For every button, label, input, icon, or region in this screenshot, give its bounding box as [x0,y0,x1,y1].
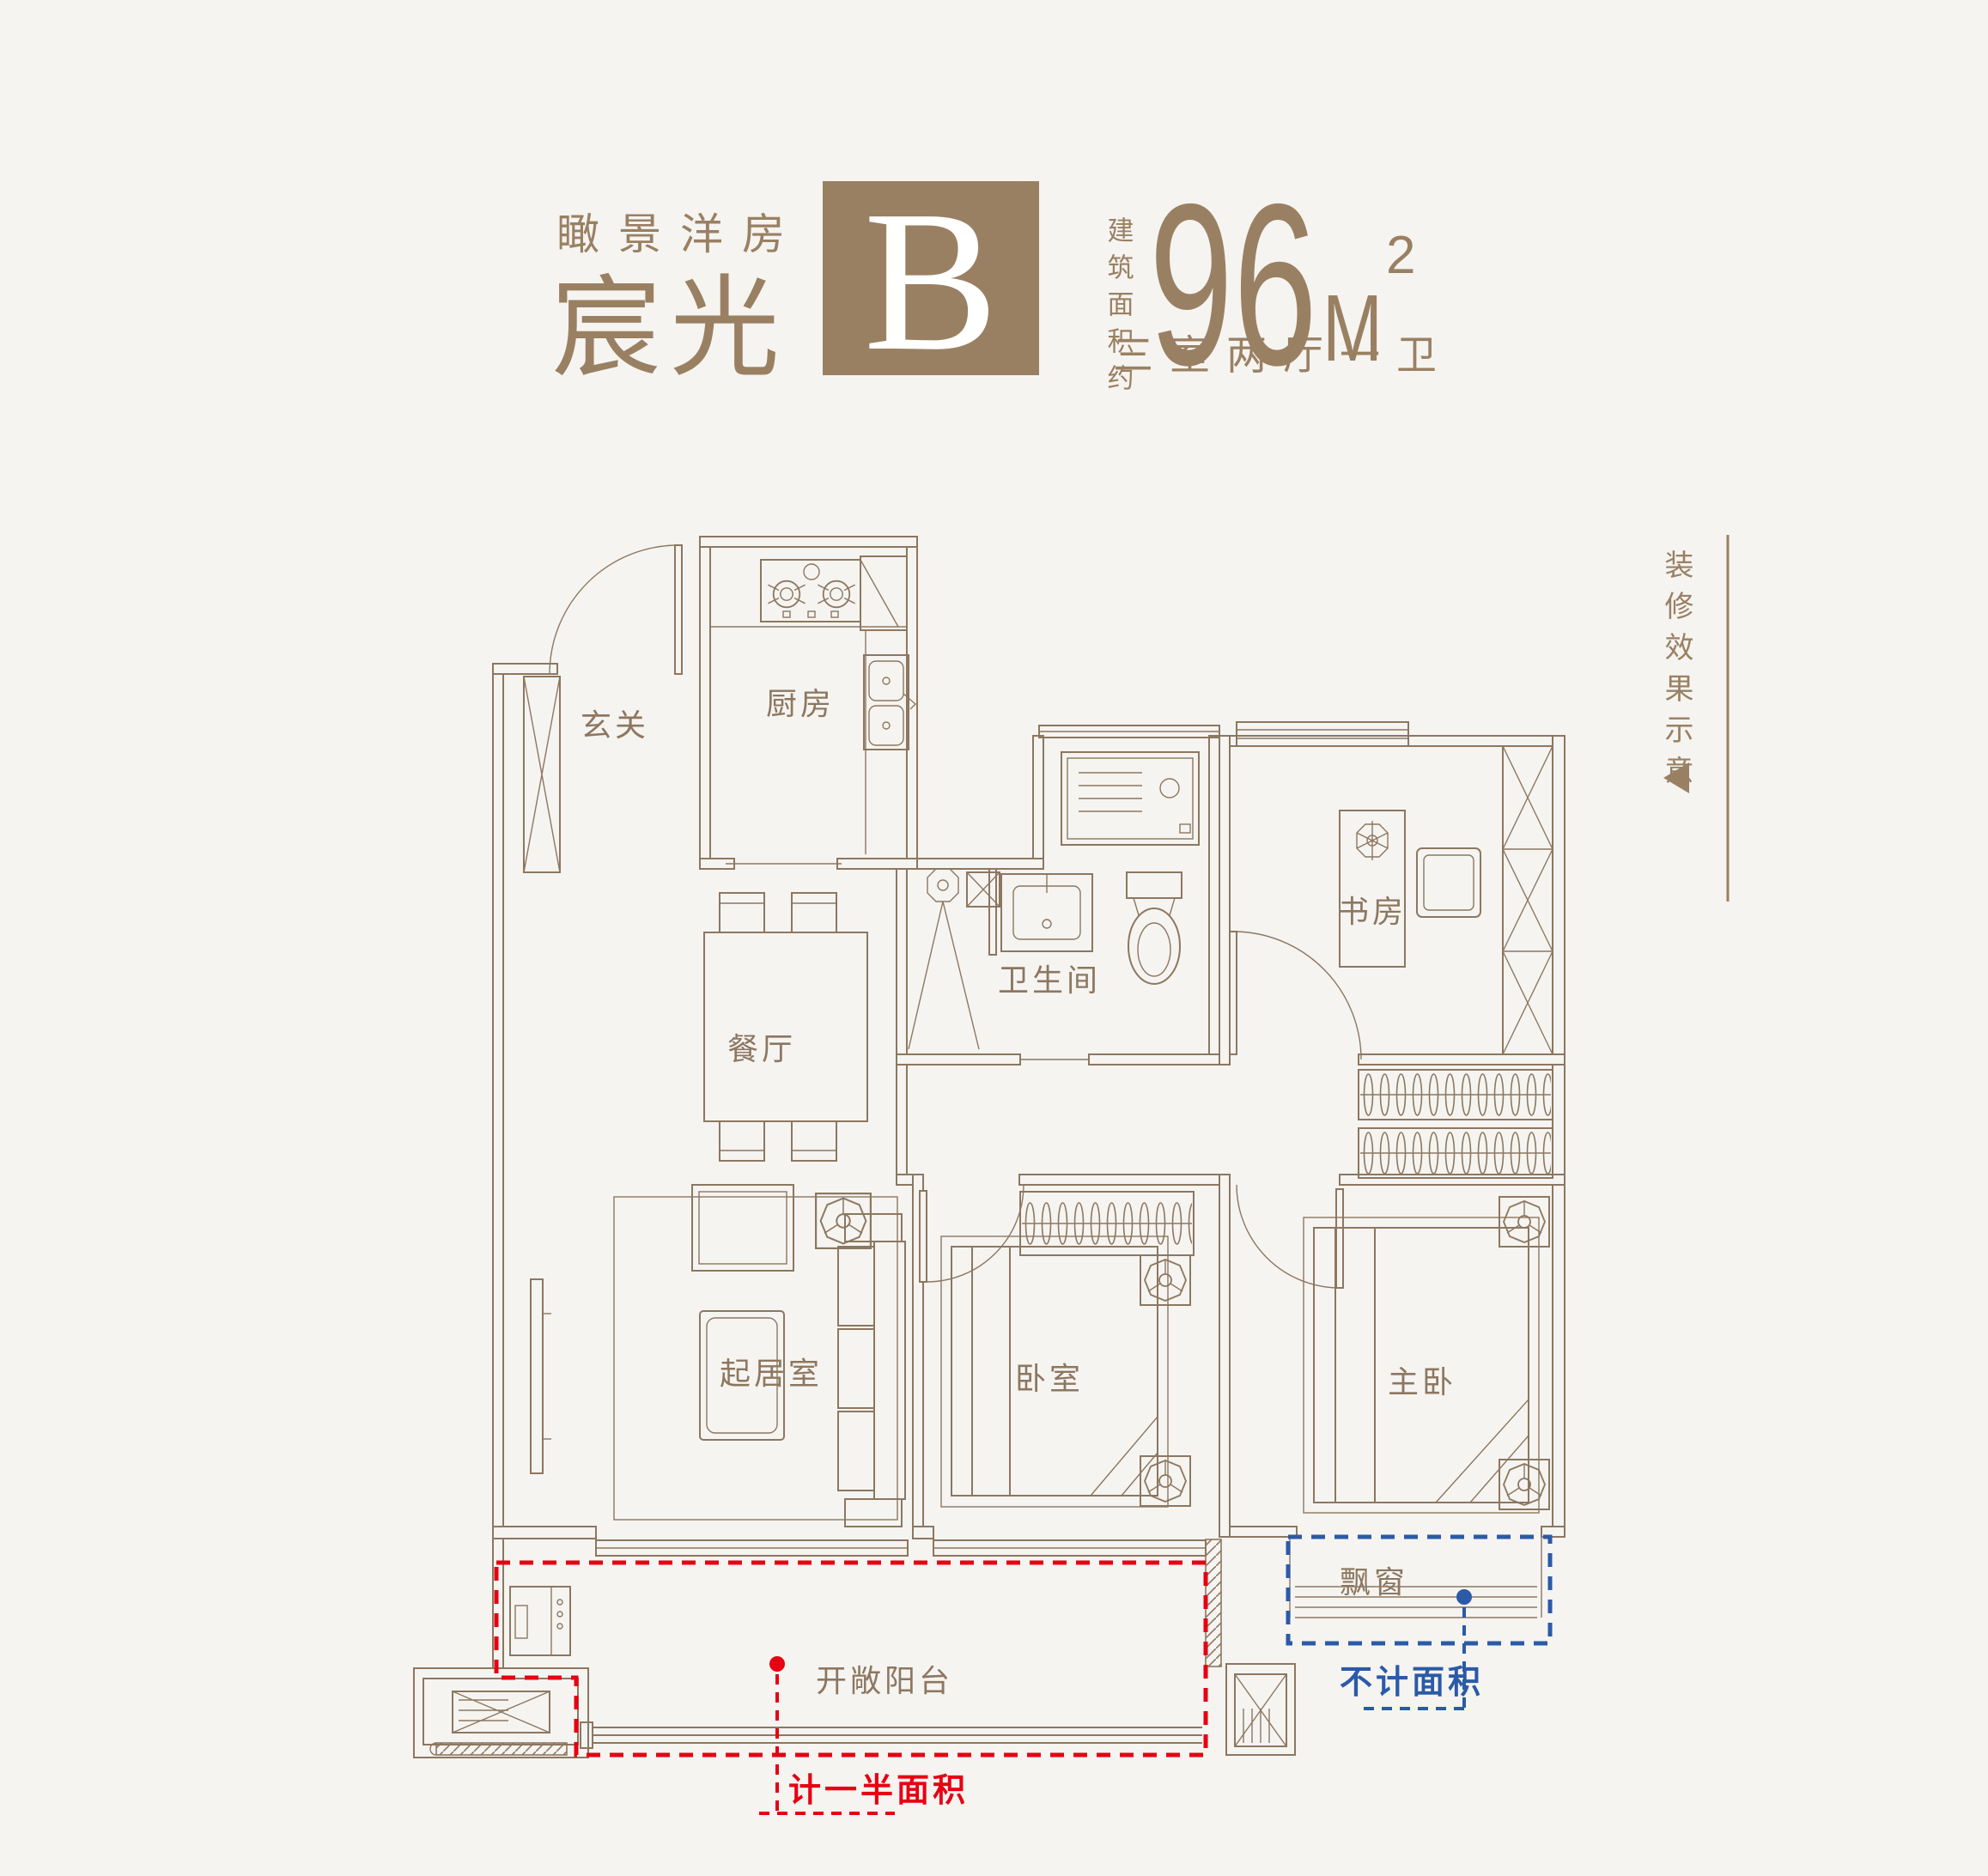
leader-dot [1456,1589,1472,1605]
balcony-side-wall [1206,1539,1221,1667]
half-area-boundary [496,1563,1206,1755]
sideboard-icon [692,1185,793,1271]
lamp-icon [1499,1197,1549,1247]
foyer-cabinet-icon [524,677,560,872]
desk-icon [1340,811,1405,967]
leader-dot [769,1656,785,1672]
study-door [1230,932,1361,1059]
kitchen-sink-icon [864,655,915,750]
room-label-bedroom: 卧室 [1015,1361,1084,1396]
dining-table-icon [704,893,867,1161]
room-label-study: 书房 [1338,894,1407,929]
master-door [1237,1185,1343,1288]
room-label-living: 起居室 [720,1356,823,1391]
shower-icon [909,869,979,1049]
laundry-window [1039,726,1219,738]
bay-window-outline [1288,1537,1550,1643]
tv-icon [531,1279,551,1473]
half-area-label: 计一半面积 [788,1773,969,1809]
sofa-icon [838,1214,905,1527]
room-label-balcony: 开敞阳台 [816,1663,953,1698]
room-label-master: 主卧 [1388,1364,1456,1399]
kitchen-casement-window [860,556,907,630]
side-note: 装修效果示意 [1660,535,1728,902]
ac-platform-icon [1226,1664,1295,1755]
series-label: 瞰景洋房 [556,210,804,258]
lamp-icon [1140,1255,1190,1305]
plan-name: 宸光 [551,267,788,390]
living-south-window [596,1540,908,1556]
title-block: 瞰景洋房 宸光 B 建筑面积约 96 M 2 三室两厅一卫 [551,155,1453,413]
living-room-furniture [531,1185,905,1527]
ac-platform-icon [414,1668,588,1758]
toilet-icon [1127,872,1182,984]
desk-chair-icon [1417,848,1480,917]
washing-machine-icon [1061,752,1199,845]
balcony [414,1539,1295,1758]
floor-plan-page: 瞰景洋房 宸光 B 建筑面积约 96 M 2 三室两厅一卫 装修效果示意 [0,0,1988,1876]
excluded-area-label: 不计面积 [1340,1665,1484,1701]
room-label-kitchen: 厨房 [766,686,835,721]
area-superscript: 2 [1386,226,1415,285]
layout-description: 三室两厅一卫 [1113,332,1453,378]
doors [550,545,1361,1288]
bay-window [1288,1537,1550,1643]
room-label-bathroom: 卫生间 [998,962,1101,998]
bedroom-south-window [933,1540,1206,1556]
washbasin-icon [1001,874,1092,951]
room-label-baywindow: 飘窗 [1340,1564,1408,1600]
side-note-text: 装修效果示意 [1660,549,1693,797]
room-label-dining: 餐厅 [727,1031,796,1066]
study-wardrobe-icon [1503,746,1553,1054]
lamp-icon [816,1193,871,1248]
bathroom-fixtures [909,869,1182,1049]
room-label-foyer: 玄关 [581,707,649,743]
entry-door [550,545,682,674]
balcony-railing [581,1722,1202,1748]
water-heater-icon [510,1587,570,1655]
floor-plan-canvas: 瞰景洋房 宸光 B 建筑面积约 96 M 2 三室两厅一卫 装修效果示意 [0,0,1988,1876]
stove-icon [761,560,860,622]
unit-letter: B [864,169,999,392]
